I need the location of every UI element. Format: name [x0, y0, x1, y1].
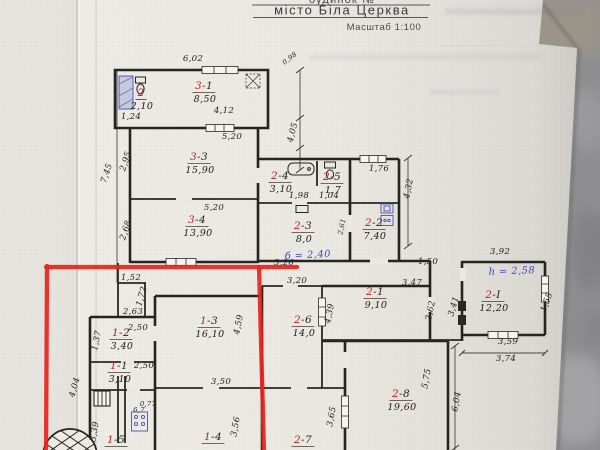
room-label: 2-38,0	[292, 220, 315, 245]
dimension-label: 6,02	[183, 54, 203, 64]
dimension-label: 1,52	[121, 273, 141, 283]
window-symbol	[166, 259, 196, 266]
room-number: 2-2	[364, 217, 383, 229]
room-number: 2-8	[391, 388, 410, 400]
room-area: 9,10	[365, 300, 388, 311]
window-symbol	[342, 396, 349, 428]
window-symbol	[360, 156, 386, 163]
room-label: 2-19,10	[364, 286, 388, 311]
room-area: 12,20	[479, 303, 508, 314]
room-label: 2-614,0	[292, 314, 316, 339]
dimension-label: 2,63	[122, 307, 144, 317]
room-number: 2-5	[322, 171, 341, 183]
room-area: 13,90	[183, 228, 212, 239]
room-number: 3-1	[195, 80, 213, 92]
photo-of-floor-plan-document: будинок № місто Біла Церква Масштаб 1:10…	[0, 0, 600, 450]
room-label: 3-18,50	[193, 80, 217, 105]
room-area: 14,0	[293, 328, 316, 339]
dimension-label: 4,12	[213, 106, 234, 116]
dimension-label: 3,92	[490, 247, 510, 257]
window-symbol	[202, 67, 238, 74]
room-label: 2-27,40	[363, 217, 387, 242]
dimension-label: 6,7	[133, 406, 145, 414]
dimension-label: 1,04	[319, 191, 339, 201]
room-label: 1-5	[105, 434, 128, 446]
room-number: 3-3	[190, 151, 208, 163]
room-area: 8,50	[194, 94, 217, 105]
floor-plan-canvas: будинок № місто Біла Церква Масштаб 1:10…	[0, 0, 600, 450]
window-symbol	[206, 125, 234, 132]
room-number: 2	[136, 87, 144, 99]
height-note: h = 2,58	[488, 265, 535, 278]
room-number: 1-1	[110, 360, 128, 372]
room-number: 2-7	[293, 434, 312, 446]
room-number: 2-3	[293, 220, 312, 232]
red-highlight-stroke	[46, 266, 47, 450]
dimension-label: 2,50	[127, 323, 149, 333]
room-number: 3-4	[188, 214, 206, 226]
room-number: 2-І	[484, 289, 501, 301]
room-label: 1-4	[202, 431, 225, 443]
dimension-label: 5,20	[204, 203, 225, 213]
room-area: 15,90	[185, 165, 214, 176]
dimension-label: 3,59	[498, 337, 519, 347]
dimension-label: 1,76	[369, 164, 390, 174]
dimension-label: 5,20	[222, 132, 243, 142]
header-city: місто Біла Церква	[274, 3, 410, 18]
room-area: 16,10	[195, 329, 224, 340]
dimension-label: 1,24	[121, 112, 141, 122]
dimension-label: 3,74	[496, 354, 516, 364]
room-number: 2-6	[293, 314, 312, 326]
room-area: 3,10	[109, 374, 132, 385]
dimension-label: 1,98	[289, 191, 310, 201]
room-label: 1-13,10	[108, 360, 132, 385]
room-area: 19,60	[387, 402, 416, 413]
room-area: 7,40	[364, 231, 387, 242]
stove-icon	[94, 391, 110, 406]
room-area: 8,0	[296, 234, 312, 245]
room-number: 1-3	[200, 315, 218, 327]
header-scale: Масштаб 1:100	[347, 22, 422, 33]
room-number: 1-5	[107, 434, 125, 446]
room-area: 2,10	[130, 101, 154, 112]
dimension-label: 3,50	[211, 377, 232, 387]
dimension-label: 3,47	[402, 278, 423, 288]
dimension-label: 1,50	[418, 257, 439, 267]
dimension-label: 3,20	[287, 276, 308, 286]
room-number: 1-4	[204, 431, 222, 443]
dimension-label: 2,50	[133, 361, 155, 371]
room-number: 2-4	[270, 170, 289, 182]
room-number: 2-1	[365, 286, 384, 298]
room-area: 3,40	[111, 341, 134, 352]
room-label: 2-7	[292, 434, 315, 446]
